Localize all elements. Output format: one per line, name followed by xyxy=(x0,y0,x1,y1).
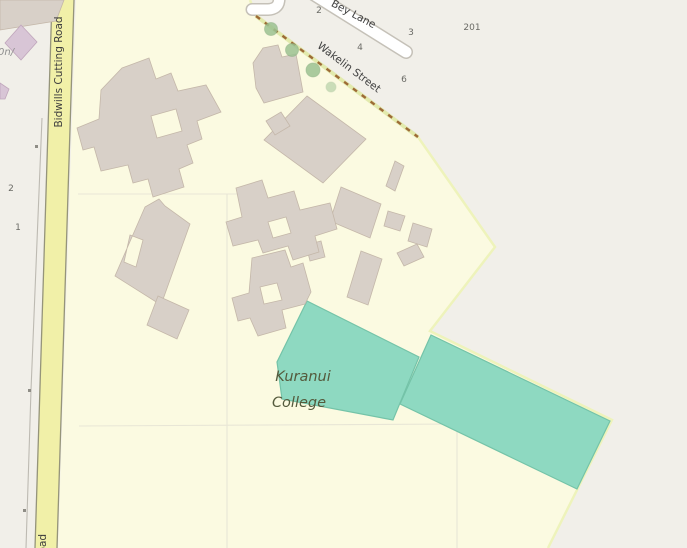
college-label-line1: Kuranui xyxy=(275,369,331,385)
tree-icon xyxy=(265,23,278,36)
tree-icon xyxy=(306,63,320,77)
map-viewport[interactable]: Bidwills Cutting Road Bidwills Cutting R… xyxy=(0,0,687,548)
map-canvas[interactable]: Bidwills Cutting Road Bidwills Cutting R… xyxy=(0,0,687,548)
label-fragment: 0n/ xyxy=(0,47,16,58)
house-number: 3 xyxy=(408,28,414,38)
house-number: 1 xyxy=(15,223,21,233)
house-number: 4 xyxy=(357,43,363,53)
tree-icon xyxy=(286,44,299,57)
house-number: 6 xyxy=(401,75,407,85)
college-label-line2: College xyxy=(272,395,326,411)
tree-icon xyxy=(326,82,336,92)
house-number: 2 xyxy=(8,184,14,194)
house-number: 2 xyxy=(316,6,322,16)
house-number: 201 xyxy=(463,23,480,33)
street-label-bidwills-cutting-road: Bidwills Cutting Road xyxy=(53,16,65,127)
street-label-bidwills-cutting-road-repeat: Bidwills Cutting Road xyxy=(37,534,49,548)
